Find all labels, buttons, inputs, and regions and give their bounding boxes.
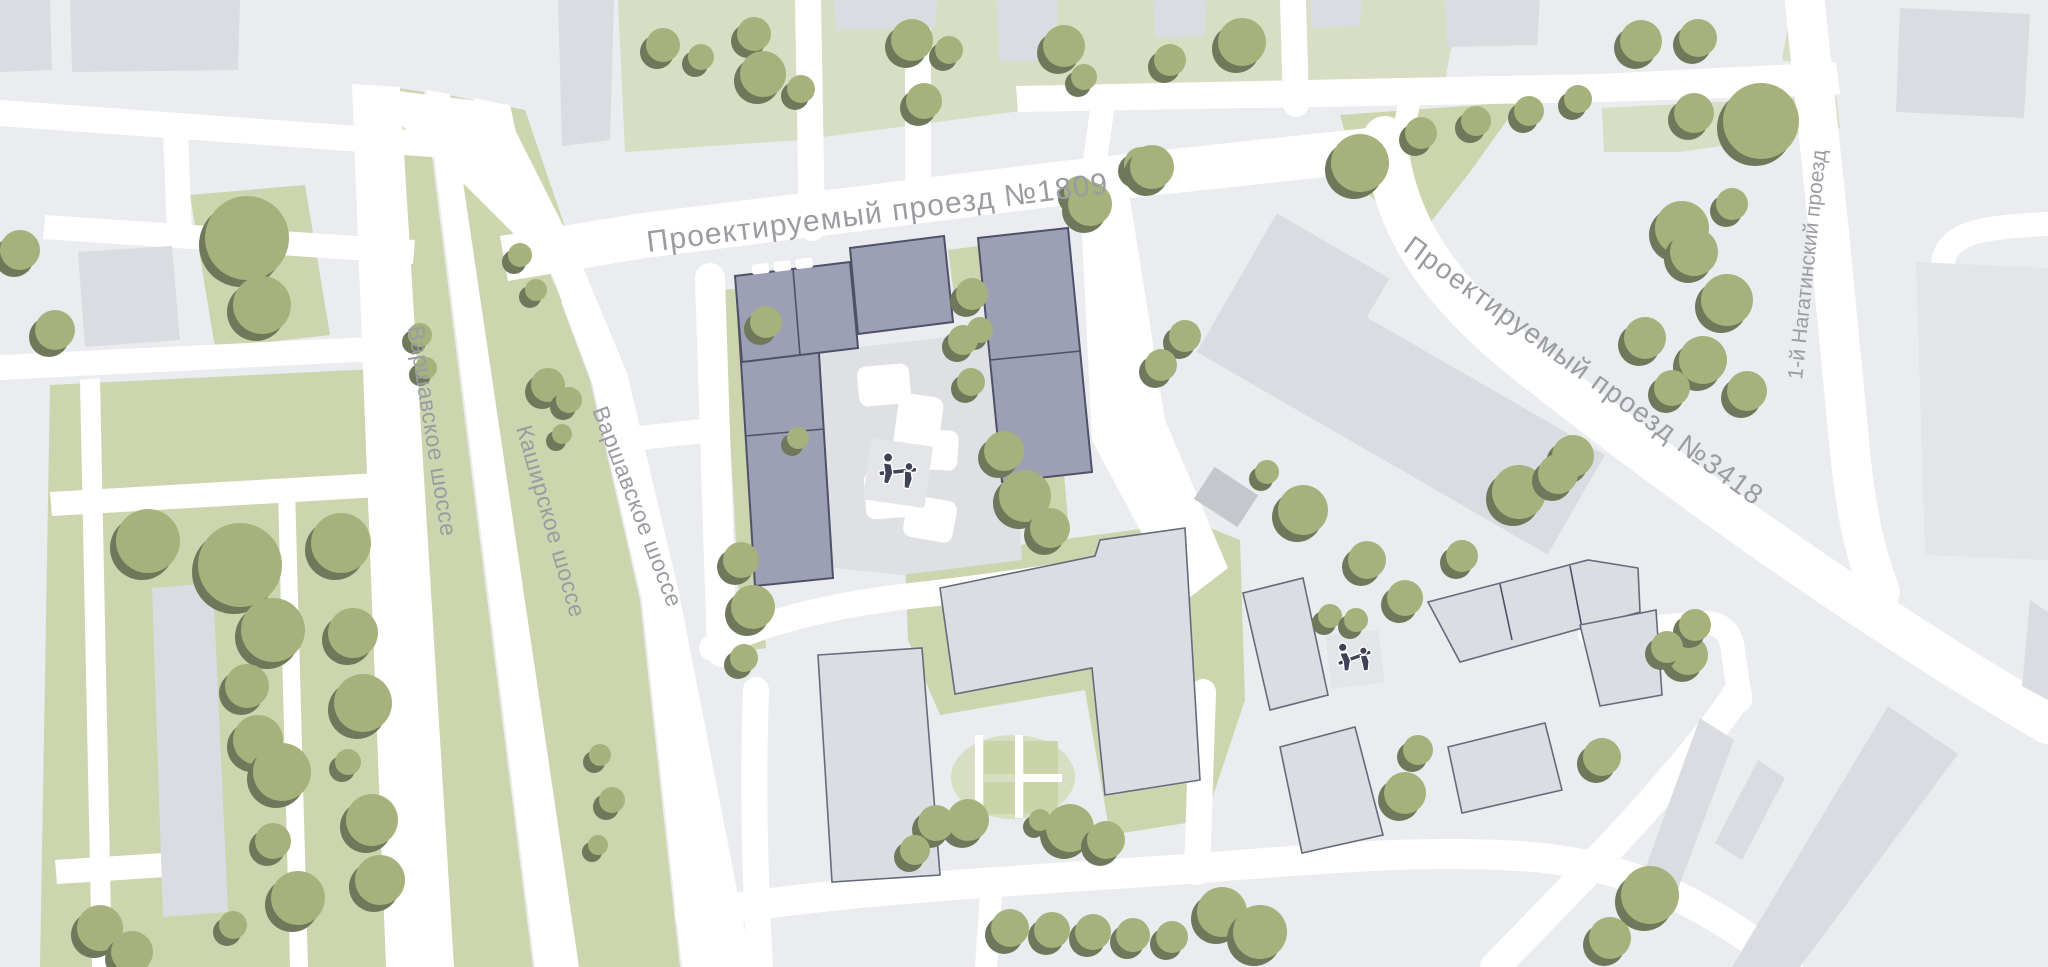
tree-icon (508, 243, 532, 267)
tree-icon (1116, 918, 1150, 952)
tree-icon (253, 743, 311, 801)
tree-icon (1331, 134, 1389, 192)
tree-icon (1654, 370, 1690, 406)
figure-head (883, 452, 893, 462)
tree-icon (730, 644, 758, 672)
tree-icon (1621, 866, 1679, 924)
tree-icon (334, 674, 392, 732)
tree-icon (599, 787, 625, 813)
garden-bed (984, 741, 1015, 774)
tree-icon (255, 823, 291, 859)
tree-icon (346, 794, 398, 846)
tree-icon (1087, 821, 1125, 859)
garden-bed (1024, 741, 1058, 774)
tree-icon (116, 509, 180, 573)
tree-icon (1043, 25, 1085, 67)
building (1310, 0, 1362, 28)
tree-icon (1130, 145, 1174, 189)
tree-icon (1387, 580, 1423, 616)
tree-icon (1679, 609, 1711, 641)
tree-icon (1670, 228, 1718, 276)
tree-icon (1384, 772, 1426, 814)
tree-icon (1255, 460, 1279, 484)
road-connector (1293, 0, 1296, 104)
map-canvas: Проектируемый проезд №1809 Проектируемый… (0, 0, 2048, 967)
tree-icon (1344, 608, 1368, 632)
tree-icon (646, 28, 680, 62)
tree-icon (1674, 93, 1714, 133)
tree-icon (1233, 905, 1287, 959)
tree-icon (335, 749, 361, 775)
road-stub (163, 128, 192, 235)
tree-icon (1514, 96, 1544, 126)
tree-icon (1145, 349, 1177, 381)
tree-icon (556, 387, 582, 413)
tree-icon (552, 424, 572, 444)
building (558, 0, 614, 146)
tree-icon (991, 909, 1029, 947)
tree-icon (1679, 336, 1727, 384)
building (1153, 0, 1207, 38)
tree-icon (1278, 485, 1328, 535)
crosswalk-stripe (751, 263, 769, 275)
road-connector (754, 690, 760, 967)
tree-icon (1403, 735, 1433, 765)
tree-icon (241, 598, 305, 662)
building (1896, 8, 2030, 118)
tree-icon (935, 36, 963, 64)
tree-icon (1030, 508, 1070, 548)
tree-icon (1075, 914, 1111, 950)
tree-icon (1348, 541, 1386, 579)
tree-icon (984, 431, 1024, 471)
tree-icon (1034, 912, 1070, 948)
tree-icon (688, 44, 714, 70)
road-link (640, 430, 712, 438)
building (70, 0, 240, 72)
tree-icon (787, 427, 809, 449)
tree-icon (355, 855, 405, 905)
tree-icon (787, 75, 815, 103)
building (0, 0, 52, 72)
tree-icon (1624, 317, 1666, 359)
tree-icon (1723, 83, 1799, 159)
tree-icon (0, 230, 40, 270)
tree-icon (198, 523, 282, 607)
tree-icon (1538, 454, 1578, 494)
tree-icon (1071, 64, 1097, 90)
tree-icon (219, 911, 247, 939)
tree-icon (311, 513, 371, 573)
playground-2 (1326, 630, 1385, 689)
tree-icon (948, 325, 978, 355)
tree-icon (1169, 320, 1201, 352)
building (78, 246, 180, 347)
crosswalk-stripe (795, 257, 813, 269)
garden-bed (984, 782, 1015, 814)
figure-head (1338, 643, 1347, 652)
tree-icon (589, 744, 611, 766)
tree-icon (731, 585, 775, 629)
building (1916, 262, 2048, 560)
tree-icon (1583, 738, 1621, 776)
tree-icon (35, 310, 75, 350)
tree-icon (737, 17, 771, 51)
road-connector (808, 0, 812, 228)
figure-head (904, 462, 913, 471)
tree-icon (1154, 44, 1186, 76)
tree-icon (1701, 274, 1753, 326)
road-courtyard-west (710, 278, 722, 652)
tree-icon (525, 279, 547, 301)
tree-icon (740, 51, 786, 97)
tree-icon (1446, 540, 1478, 572)
tree-icon (900, 835, 930, 865)
tree-icon (1218, 18, 1266, 66)
tree-icon (750, 306, 782, 338)
playground-1 (863, 438, 933, 508)
tree-icon (1461, 106, 1491, 136)
tree-icon (1589, 917, 1631, 959)
crosswalk-stripe (773, 260, 791, 272)
tree-icon (1564, 85, 1592, 113)
highlighted-building-north-wing (850, 236, 953, 334)
tree-icon (956, 278, 988, 310)
tree-icon (1405, 117, 1437, 149)
tree-icon (225, 664, 269, 708)
building (1445, 0, 1540, 47)
tree-icon (233, 276, 291, 334)
figure-head (1359, 647, 1367, 655)
tree-icon (906, 83, 942, 119)
tree-icon (271, 871, 325, 925)
road-connector (1197, 692, 1203, 872)
tree-icon (1679, 19, 1717, 57)
site-plan-map: Проектируемый проезд №1809 Проектируемый… (0, 0, 2048, 967)
tree-icon (1156, 921, 1188, 953)
tree-icon (588, 835, 608, 855)
tree-icon (1620, 20, 1662, 62)
tree-icon (891, 19, 933, 61)
tree-icon (918, 805, 954, 841)
tree-icon (328, 608, 378, 658)
tree-icon (1716, 188, 1748, 220)
tree-icon (723, 542, 759, 578)
tree-icon (1651, 631, 1683, 663)
tree-icon (1029, 809, 1051, 831)
tree-icon (1727, 371, 1767, 411)
tree-icon (205, 196, 289, 280)
tree-icon (957, 368, 985, 396)
